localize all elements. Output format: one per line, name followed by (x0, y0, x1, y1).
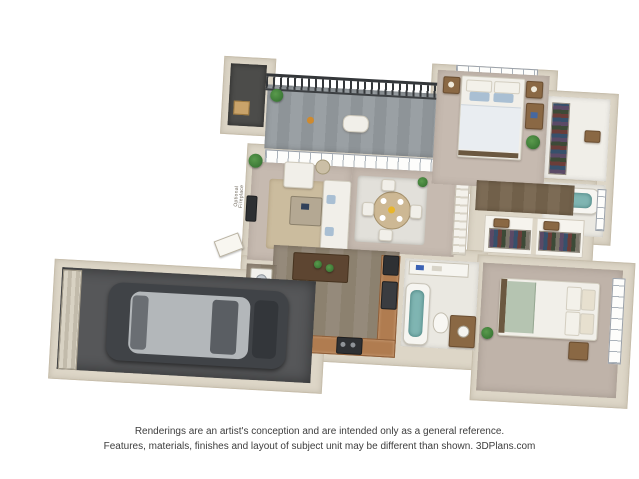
island-produce (314, 260, 322, 268)
coffee-table-decor (301, 203, 309, 209)
master-nightstand-left (443, 76, 461, 94)
dining-chair (362, 202, 375, 217)
hall-closet-clothes (488, 228, 531, 250)
car (105, 282, 289, 370)
range-stove (336, 337, 363, 355)
master-desk (525, 103, 544, 130)
storage-floor (228, 63, 267, 127)
front-door (214, 232, 244, 257)
lamp (531, 86, 537, 92)
bath2-tub-water (408, 290, 425, 338)
dining-chair (378, 229, 393, 242)
desk-item (530, 112, 537, 118)
bed2-sage-blanket (504, 281, 536, 334)
bath2-tub (403, 282, 431, 345)
hall-closet-clothes (538, 231, 581, 253)
kitchen-island (292, 252, 349, 283)
car-windshield (210, 300, 239, 355)
bedroom2-nightstand (568, 342, 589, 361)
master-bed (457, 75, 525, 160)
burner (350, 342, 355, 347)
tv (245, 195, 257, 222)
bedroom2-bed (497, 278, 600, 341)
vanity-sink (457, 325, 470, 338)
master-nightstand-right (526, 81, 544, 99)
disclaimer-line2: Features, materials, finishes and layout… (0, 440, 639, 455)
master-pillow-blue (493, 93, 513, 103)
bed2-pillow (579, 313, 594, 335)
refrigerator (382, 255, 399, 276)
bed2-pillow (564, 311, 580, 336)
car-hood (252, 300, 279, 359)
place-setting (379, 215, 385, 221)
bed2-pillow (566, 286, 582, 311)
closet-shelf-box (584, 130, 601, 143)
balcony-lounge-chair (342, 115, 369, 133)
dining-chair (381, 179, 396, 192)
disclaimer-line1: Renderings are an artist's conception an… (0, 425, 639, 440)
storage-box (233, 100, 250, 115)
sofa-pillow-blue (326, 195, 335, 204)
place-setting (396, 216, 402, 222)
burner (340, 342, 345, 347)
closet-shelf-bag (493, 218, 509, 228)
place-setting (397, 199, 403, 205)
coffee-table (289, 196, 323, 227)
armchair (283, 161, 314, 189)
vanity-item (432, 266, 442, 272)
master-duvet (459, 104, 521, 152)
car-rear-window (130, 295, 149, 350)
master-pillow (466, 79, 493, 92)
master-pillow-blue (469, 92, 489, 102)
closet-shelf-bag (543, 221, 559, 231)
floorplan-page: Optional Fireplace (0, 0, 639, 479)
hallway-floor (475, 180, 575, 215)
bed2-pillow (581, 289, 596, 311)
island-produce (325, 264, 333, 272)
place-setting (380, 198, 386, 204)
sofa-pillow-blue2 (325, 227, 334, 236)
closet-divider-wall (531, 218, 538, 254)
wall-oven (381, 281, 399, 310)
sofa (320, 180, 352, 255)
vanity-item-blue (416, 265, 424, 270)
lamp (448, 81, 454, 87)
floorplan-rendering: Optional Fireplace (46, 39, 639, 416)
hall-closets-floor (483, 215, 585, 259)
dining-chair (410, 204, 423, 219)
bath2-vanity (448, 315, 476, 348)
disclaimer-text: Renderings are an artist's conception an… (0, 425, 639, 454)
table-centerpiece (388, 206, 395, 213)
